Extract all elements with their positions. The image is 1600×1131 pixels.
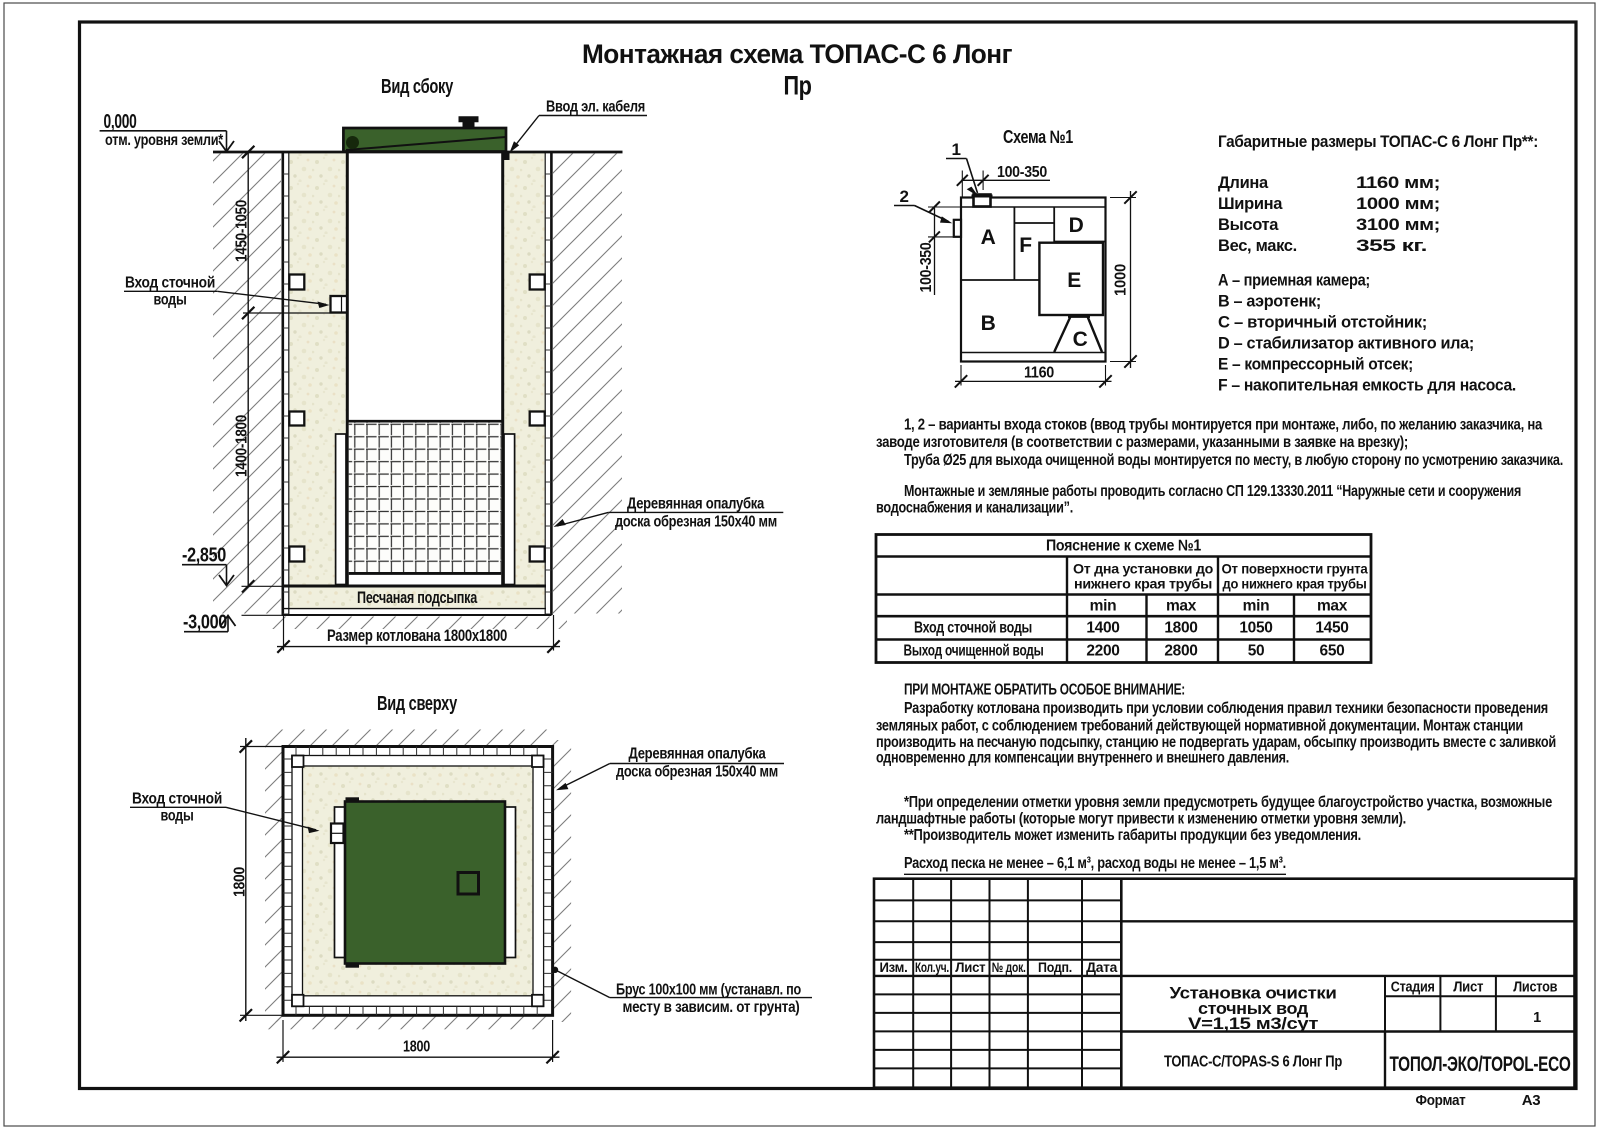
svg-text:Кол.уч.: Кол.уч. (915, 960, 949, 975)
svg-text:min: min (1243, 598, 1270, 615)
svg-text:F: F (1019, 234, 1032, 257)
svg-text:Брус 100х100 мм (устанавл. по: Брус 100х100 мм (устанавл. по (616, 982, 801, 999)
svg-text:Ввод эл. кабеля: Ввод эл. кабеля (546, 99, 645, 116)
svg-text:1800: 1800 (1164, 620, 1197, 637)
svg-text:Разработку котлована производи: Разработку котлована производить при усл… (904, 700, 1548, 717)
svg-text:Дата: Дата (1086, 960, 1118, 975)
svg-text:земляных работ, с соблюдением: земляных работ, с соблюдением требований… (876, 718, 1523, 735)
svg-text:100-350: 100-350 (918, 243, 935, 293)
svg-text:От дна установки до: От дна установки до (1073, 562, 1213, 577)
svg-text:Вход сточной: Вход сточной (125, 275, 215, 292)
svg-text:D – стабилизатор активного ила: D – стабилизатор активного ила; (1218, 335, 1474, 353)
svg-text:Пояснение к схеме №1: Пояснение к схеме №1 (1046, 538, 1202, 555)
svg-text:2: 2 (899, 187, 908, 206)
svg-text:-3,000: -3,000 (183, 612, 227, 634)
svg-text:нижнего края трубы: нижнего края трубы (1074, 577, 1212, 592)
svg-text:1: 1 (1533, 1010, 1541, 1026)
svg-text:min: min (1090, 598, 1117, 615)
svg-text:Выход очищенной воды: Выход очищенной воды (904, 643, 1044, 660)
svg-text:доска обрезная 150х40 мм: доска обрезная 150х40 мм (615, 514, 777, 531)
svg-text:От поверхности грунта: От поверхности грунта (1222, 562, 1369, 577)
svg-text:ландшафтные работы (которые мо: ландшафтные работы (которые могут привес… (876, 811, 1406, 828)
svg-text:Вход сточной воды: Вход сточной воды (914, 620, 1032, 637)
svg-text:0,000: 0,000 (104, 111, 137, 133)
svg-text:50: 50 (1248, 643, 1265, 660)
svg-text:А – приемная камера;: А – приемная камера; (1218, 272, 1370, 290)
svg-text:V=1,15 м3/сут: V=1,15 м3/сут (1188, 1014, 1318, 1033)
svg-text:**Производитель может изменить: **Производитель может изменить габариты … (904, 827, 1361, 844)
svg-text:одновременно для компенсации в: одновременно для компенсации внутреннего… (876, 750, 1289, 767)
svg-text:2800: 2800 (1164, 643, 1197, 660)
svg-text:ПРИ МОНТАЖЕ ОБРАТИТЬ ОСОБОЕ ВН: ПРИ МОНТАЖЕ ОБРАТИТЬ ОСОБОЕ ВНИМАНИЕ: (904, 682, 1185, 699)
svg-text:D: D (1069, 214, 1084, 237)
svg-text:1160 мм;: 1160 мм; (1356, 174, 1440, 192)
svg-text:Деревянная опалубка: Деревянная опалубка (629, 746, 767, 763)
svg-text:Песчаная подсыпка: Песчаная подсыпка (357, 589, 478, 607)
svg-text:B: B (981, 312, 996, 335)
svg-text:месту в зависим. от грунта): месту в зависим. от грунта) (623, 999, 800, 1016)
svg-text:ТОПОЛ-ЭКО/TOPOL-ECO: ТОПОЛ-ЭКО/TOPOL-ECO (1390, 1053, 1571, 1076)
svg-text:1400-1800: 1400-1800 (234, 415, 251, 477)
svg-text:заводе изготовителя (в соответ: заводе изготовителя (в соответствии с ра… (876, 434, 1408, 451)
svg-text:1: 1 (951, 140, 960, 159)
svg-text:Е – компрессорный отсек;: Е – компрессорный отсек; (1218, 356, 1413, 374)
svg-text:100-350: 100-350 (997, 164, 1047, 181)
svg-text:A: A (981, 226, 996, 249)
svg-text:Длина: Длина (1218, 174, 1269, 192)
svg-text:1160: 1160 (1024, 365, 1054, 382)
svg-text:Труба Ø25 для выхода очищенной: Труба Ø25 для выхода очищенной воды монт… (904, 452, 1563, 469)
svg-text:Монтажные и земляные работы пр: Монтажные и земляные работы проводить со… (904, 483, 1521, 500)
svg-text:производить на песчаную подсып: производить на песчаную подсыпку, станци… (876, 734, 1556, 751)
svg-text:воды: воды (154, 292, 187, 309)
svg-text:1, 2 – варианты входа стоков: 1, 2 – варианты входа стоков (ввод трубы… (904, 417, 1542, 434)
svg-text:Ширина: Ширина (1218, 195, 1283, 213)
svg-text:1050: 1050 (1239, 620, 1272, 637)
svg-text:А3: А3 (1522, 1092, 1541, 1109)
svg-text:1450-1050: 1450-1050 (234, 200, 251, 262)
svg-text:Монтажная схема ТОПАС-С 6 Лонг: Монтажная схема ТОПАС-С 6 Лонг (582, 39, 1012, 69)
svg-text:Вид сверху: Вид сверху (377, 693, 458, 715)
svg-text:F – накопительная емкость для: F – накопительная емкость для насоса. (1218, 377, 1516, 395)
svg-text:Подп.: Подп. (1038, 960, 1072, 975)
svg-text:Расход песка не менее – 6,1 м³: Расход песка не менее – 6,1 м³, расход в… (904, 855, 1286, 872)
svg-text:Изм.: Изм. (880, 960, 908, 975)
svg-text:С – вторичный отстойник;: С – вторичный отстойник; (1218, 314, 1427, 332)
svg-text:Вид сбоку: Вид сбоку (381, 76, 454, 98)
svg-text:Высота: Высота (1218, 216, 1279, 234)
svg-text:отм. уровня земли*: отм. уровня земли* (105, 132, 224, 149)
svg-text:1000 мм;: 1000 мм; (1356, 195, 1440, 213)
svg-text:max: max (1166, 598, 1197, 615)
svg-text:Лист: Лист (1453, 980, 1483, 996)
svg-text:Вход сточной: Вход сточной (132, 791, 222, 808)
svg-text:*При определении отметки уровн: *При определении отметки уровня земли пр… (904, 794, 1552, 811)
svg-text:1000: 1000 (1113, 264, 1130, 296)
svg-text:Листов: Листов (1513, 980, 1557, 996)
svg-text:до нижнего края трубы: до нижнего края трубы (1223, 577, 1367, 592)
svg-text:В – аэротенк;: В – аэротенк; (1218, 293, 1321, 311)
svg-text:воды: воды (161, 808, 194, 825)
svg-text:E: E (1067, 269, 1081, 292)
svg-text:Стадия: Стадия (1391, 980, 1435, 996)
svg-text:№ док.: № док. (992, 960, 1026, 975)
svg-text:Вес, макс.: Вес, макс. (1218, 237, 1297, 255)
svg-text:3100 мм;: 3100 мм; (1356, 216, 1440, 234)
svg-text:Деревянная опалубка: Деревянная опалубка (627, 496, 765, 513)
svg-text:max: max (1317, 598, 1348, 615)
svg-text:C: C (1073, 328, 1088, 351)
svg-text:2200: 2200 (1086, 643, 1119, 660)
svg-text:Габаритные размеры ТОПАС-С 6 Л: Габаритные размеры ТОПАС-С 6 Лонг Пр**: (1218, 133, 1538, 151)
svg-text:-2,850: -2,850 (182, 545, 226, 567)
svg-text:1800: 1800 (403, 1039, 430, 1056)
svg-text:1400: 1400 (1086, 620, 1119, 637)
svg-text:Схема №1: Схема №1 (1003, 127, 1073, 147)
svg-text:Формат: Формат (1416, 1092, 1466, 1109)
svg-text:ТОПАС-С/TOPAS-S 6 Лонг Пр: ТОПАС-С/TOPAS-S 6 Лонг Пр (1164, 1054, 1342, 1071)
svg-text:водоснабжения и канализации”.: водоснабжения и канализации”. (876, 500, 1073, 517)
svg-text:650: 650 (1320, 643, 1345, 660)
svg-text:355 кг.: 355 кг. (1356, 237, 1427, 255)
svg-text:Пр: Пр (784, 71, 812, 101)
svg-text:Лист: Лист (955, 960, 986, 975)
svg-text:1450: 1450 (1315, 620, 1348, 637)
svg-text:доска обрезная 150х40 мм: доска обрезная 150х40 мм (616, 764, 778, 781)
svg-text:Размер котлована 1800х1800: Размер котлована 1800х1800 (327, 627, 507, 645)
